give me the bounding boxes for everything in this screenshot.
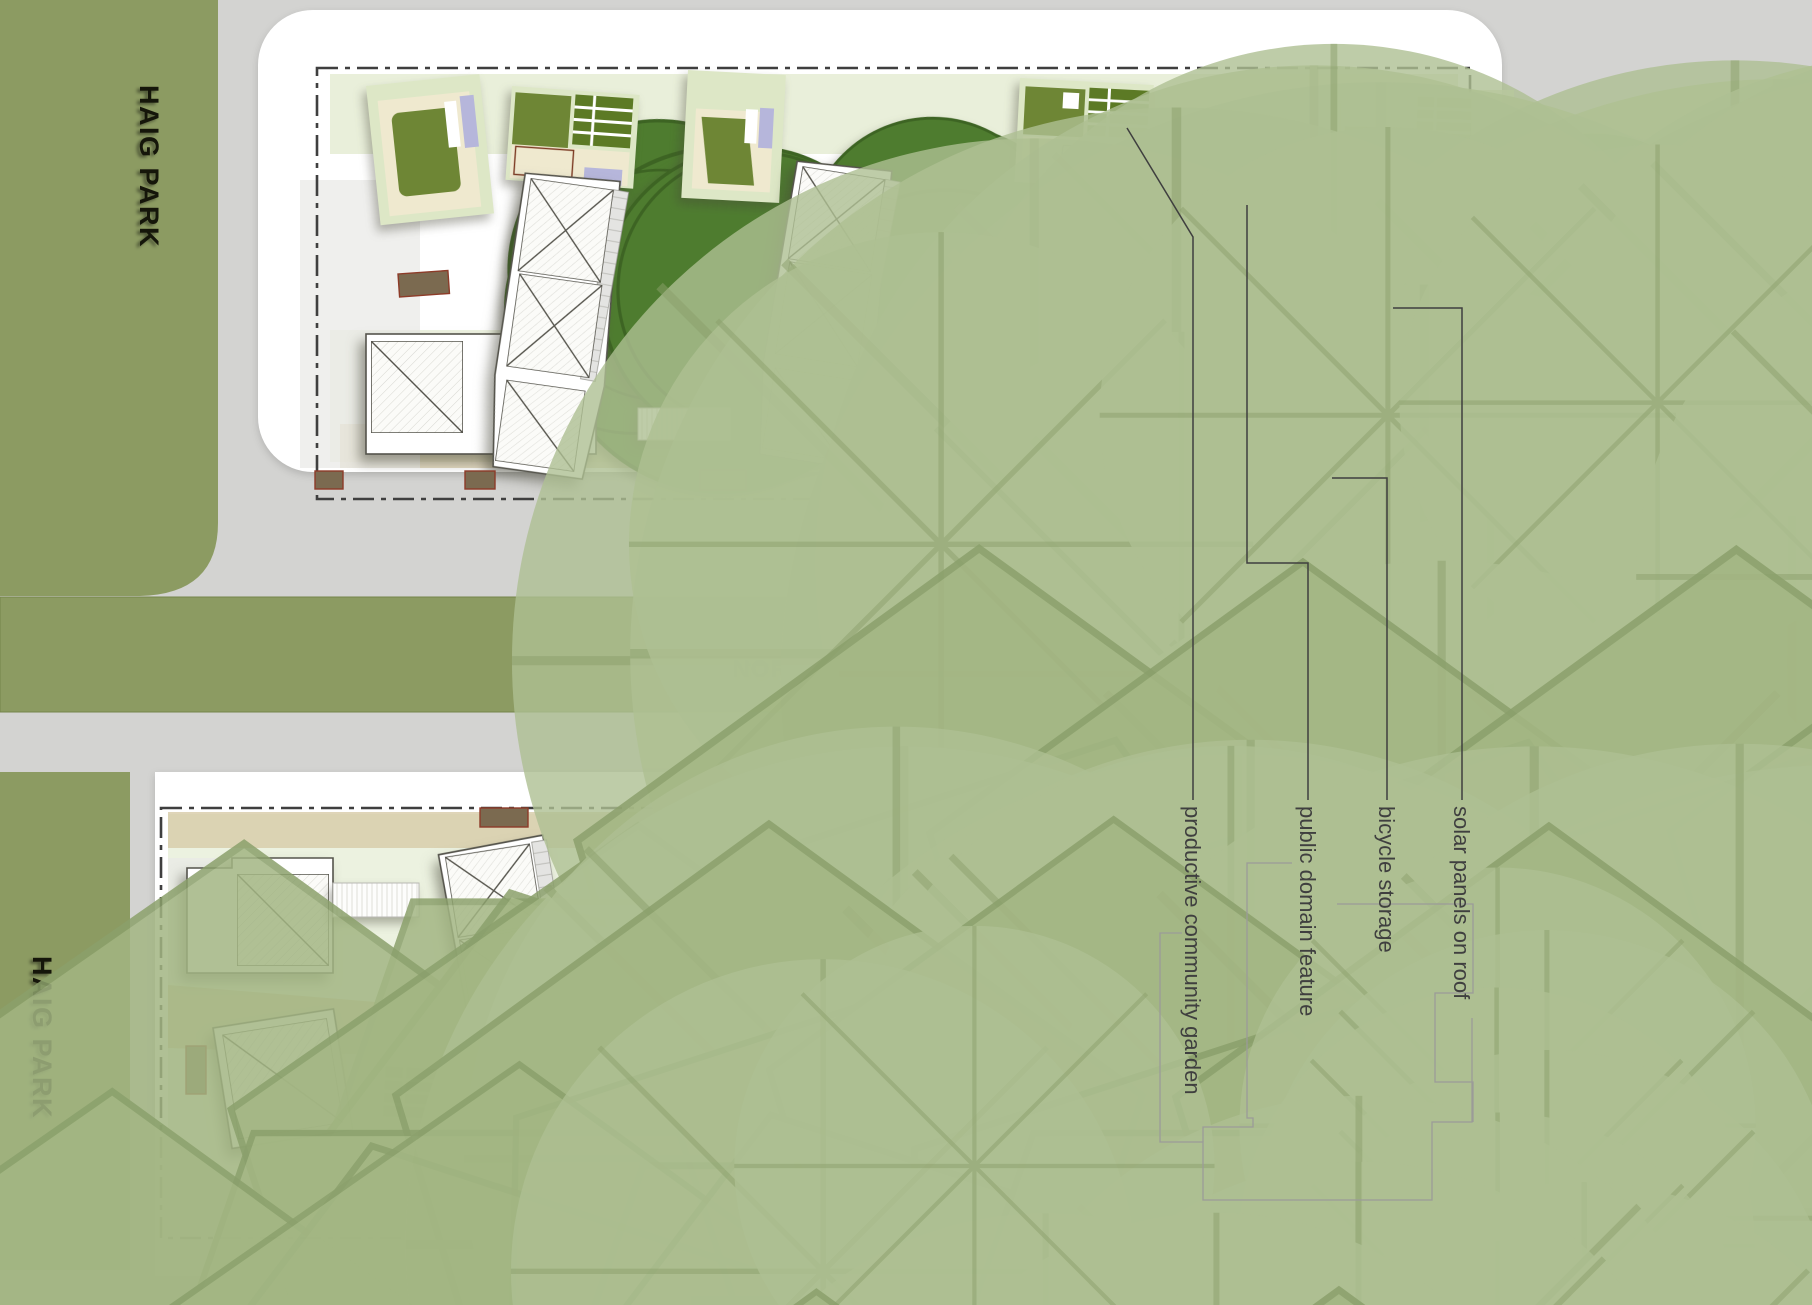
annotation-label: solar panels on roof [1449, 806, 1474, 1000]
annotation-label: productive community garden [1180, 806, 1205, 1095]
site-plan-canvas: HAIG PARK NORTHBOURNE AVENUE HAIG PARK [0, 0, 1812, 1305]
annotation-label: public domain feature [1295, 806, 1320, 1016]
site-plan: HAIG PARK NORTHBOURNE AVENUE HAIG PARK [0, 0, 1812, 1305]
annotation-label: bicycle storage [1374, 806, 1399, 953]
haig-park-top-label: HAIG PARK [134, 85, 164, 248]
haig-park-top: HAIG PARK [0, 0, 218, 596]
